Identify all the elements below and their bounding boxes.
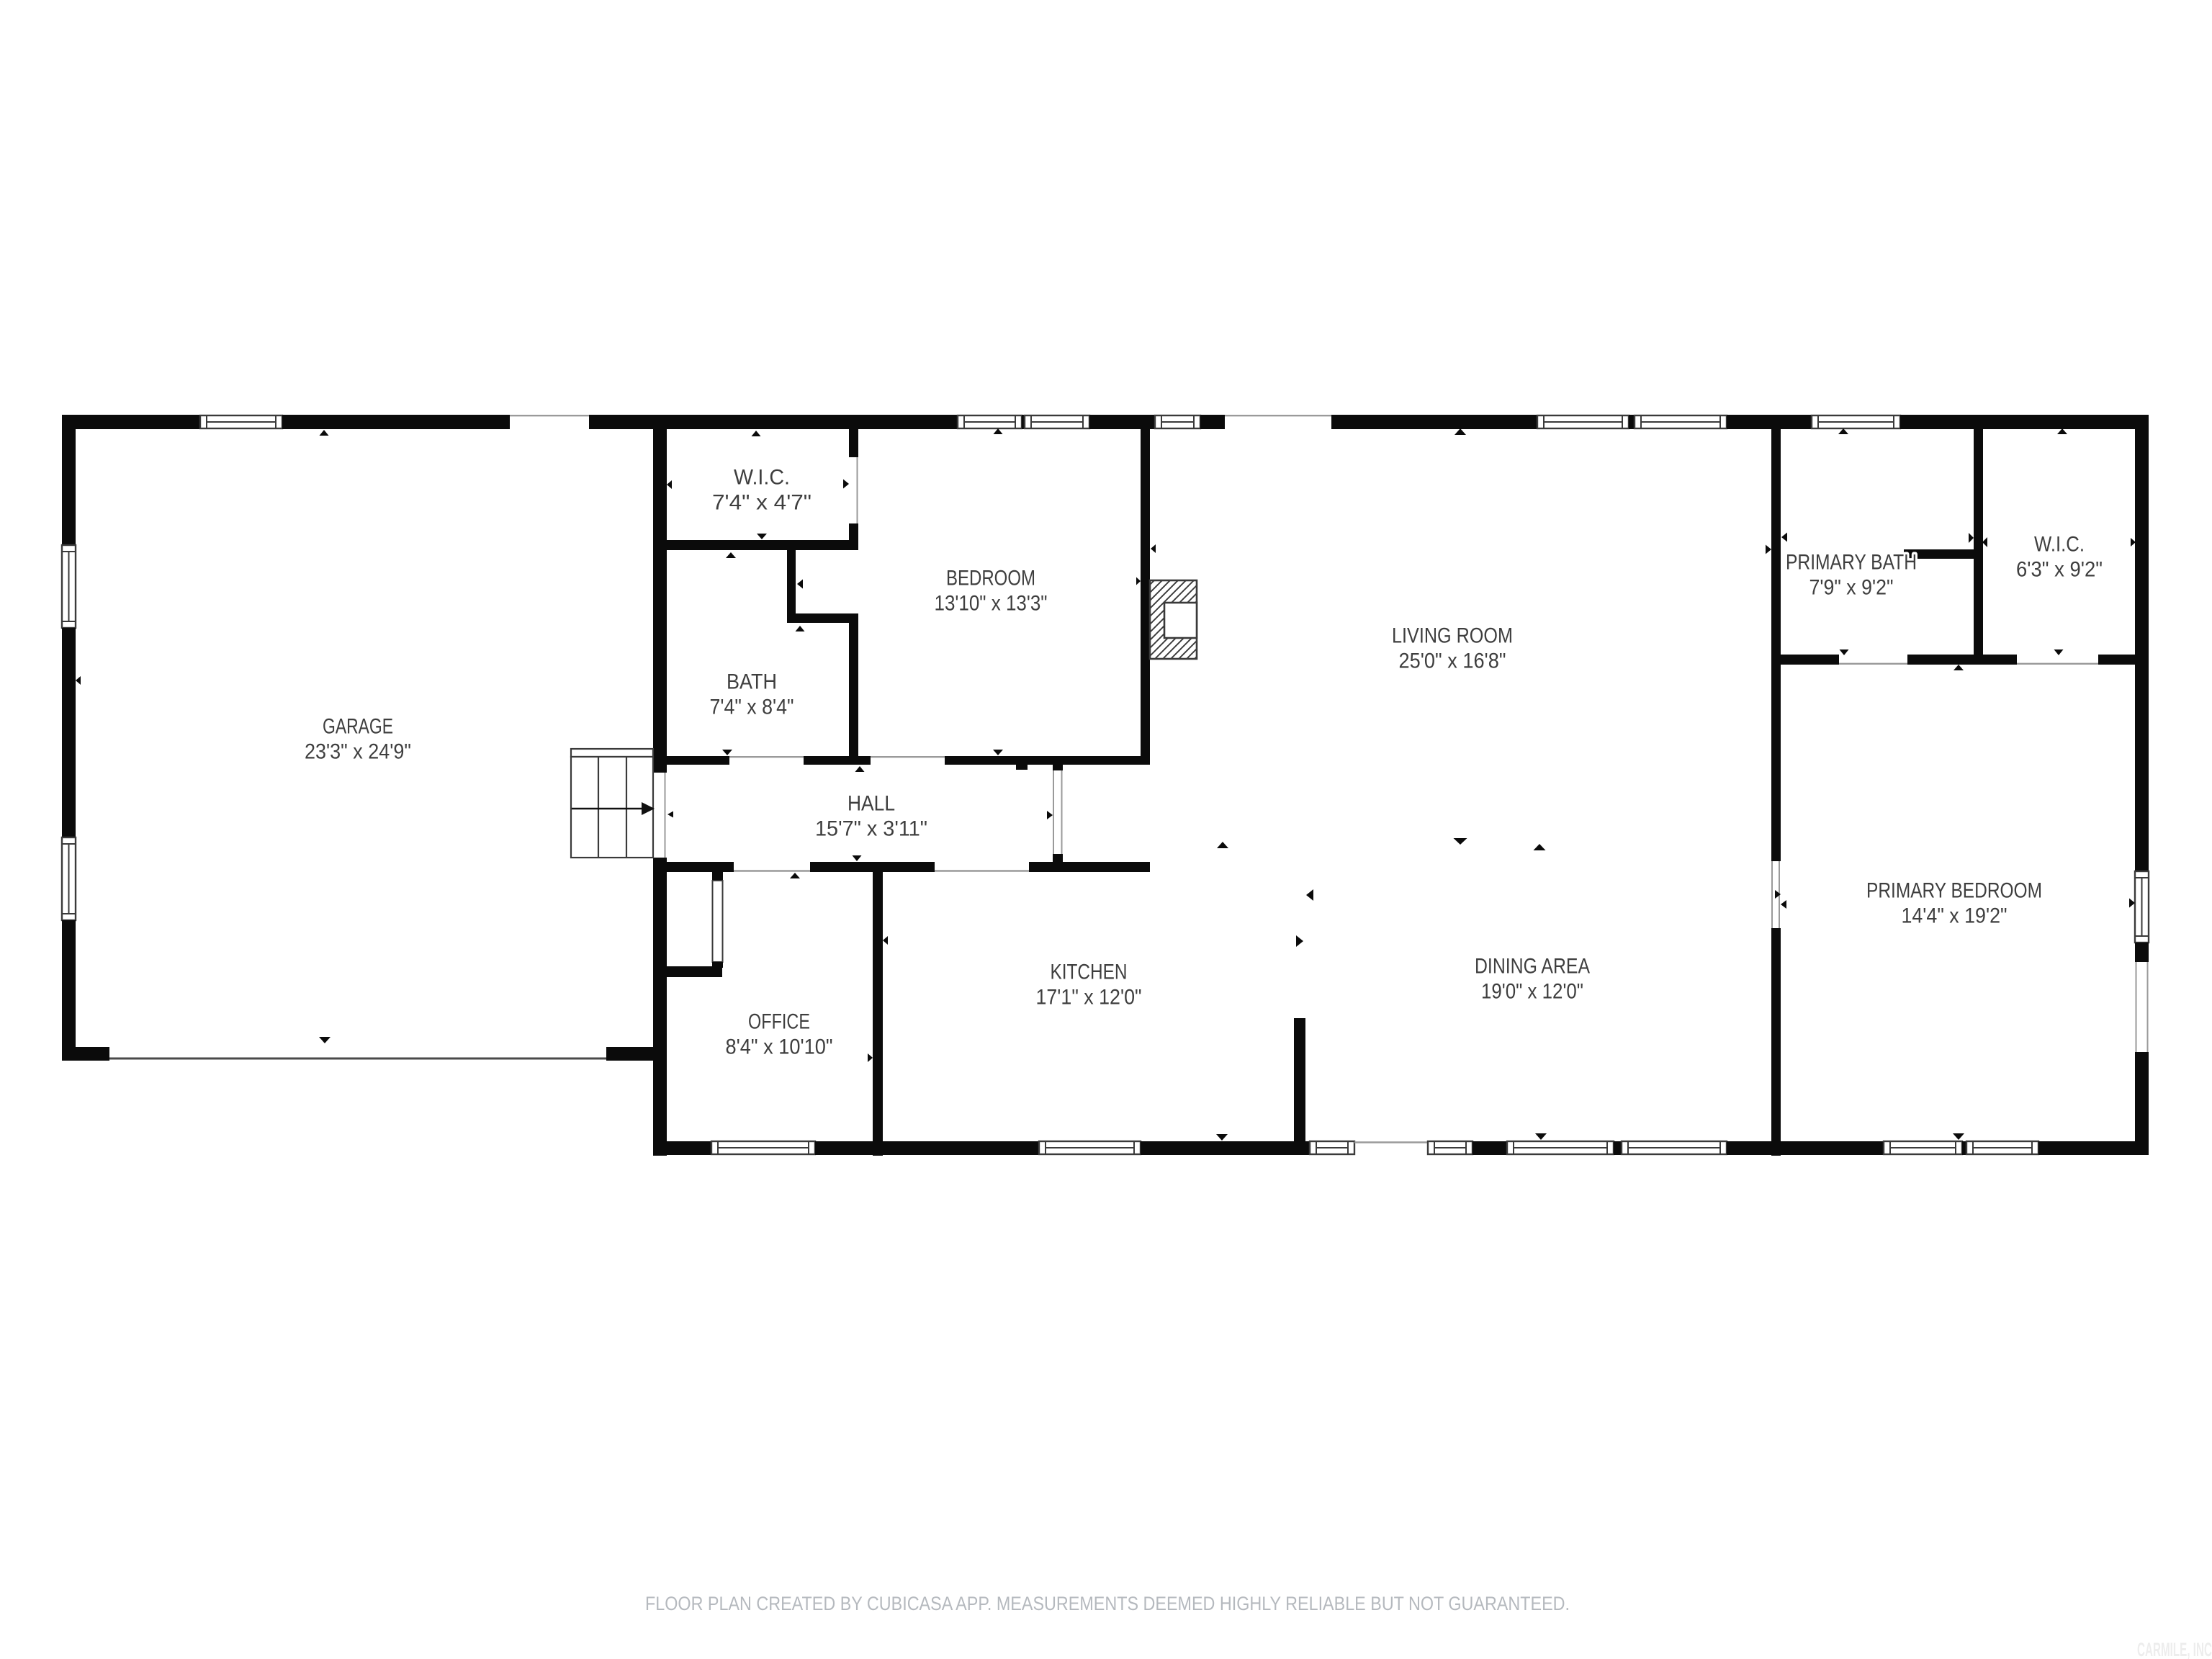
svg-text:OFFICE: OFFICE <box>748 1010 810 1034</box>
svg-text:7'9" x 9'2": 7'9" x 9'2" <box>1809 576 1894 600</box>
svg-text:FLOOR PLAN CREATED BY CUBICASA: FLOOR PLAN CREATED BY CUBICASA APP. MEAS… <box>645 1593 1570 1614</box>
svg-text:17'1" x 12'0": 17'1" x 12'0" <box>1036 986 1142 1010</box>
svg-text:13'10" x 13'3": 13'10" x 13'3" <box>935 592 1048 616</box>
svg-text:7'4" x 8'4": 7'4" x 8'4" <box>710 696 794 719</box>
svg-text:7'4" x 4'7": 7'4" x 4'7" <box>712 491 811 515</box>
svg-text:BATH: BATH <box>727 670 777 694</box>
svg-text:15'7" x 3'11": 15'7" x 3'11" <box>815 817 927 841</box>
svg-text:DINING AREA: DINING AREA <box>1475 955 1590 979</box>
svg-text:25'0" x 16'8": 25'0" x 16'8" <box>1399 649 1506 673</box>
svg-text:23'3" x 24'9": 23'3" x 24'9" <box>305 740 411 764</box>
svg-text:BEDROOM: BEDROOM <box>946 567 1035 590</box>
svg-text:HALL: HALL <box>848 792 895 816</box>
svg-text:19'0" x 12'0": 19'0" x 12'0" <box>1481 980 1583 1004</box>
svg-text:GARAGE: GARAGE <box>323 715 393 739</box>
svg-text:CARMILE, INC: CARMILE, INC <box>2137 1639 2212 1659</box>
svg-text:LIVING ROOM: LIVING ROOM <box>1392 624 1513 648</box>
svg-text:W.I.C.: W.I.C. <box>734 466 790 490</box>
svg-text:14'4" x 19'2": 14'4" x 19'2" <box>1902 904 2008 928</box>
svg-text:KITCHEN: KITCHEN <box>1051 961 1128 984</box>
svg-text:PRIMARY BATH: PRIMARY BATH <box>1786 551 1917 575</box>
svg-text:W.I.C.: W.I.C. <box>2034 533 2085 557</box>
svg-text:6'3" x 9'2": 6'3" x 9'2" <box>2016 558 2103 582</box>
svg-text:PRIMARY BEDROOM: PRIMARY BEDROOM <box>1866 879 2042 903</box>
svg-text:8'4" x 10'10": 8'4" x 10'10" <box>726 1035 833 1059</box>
